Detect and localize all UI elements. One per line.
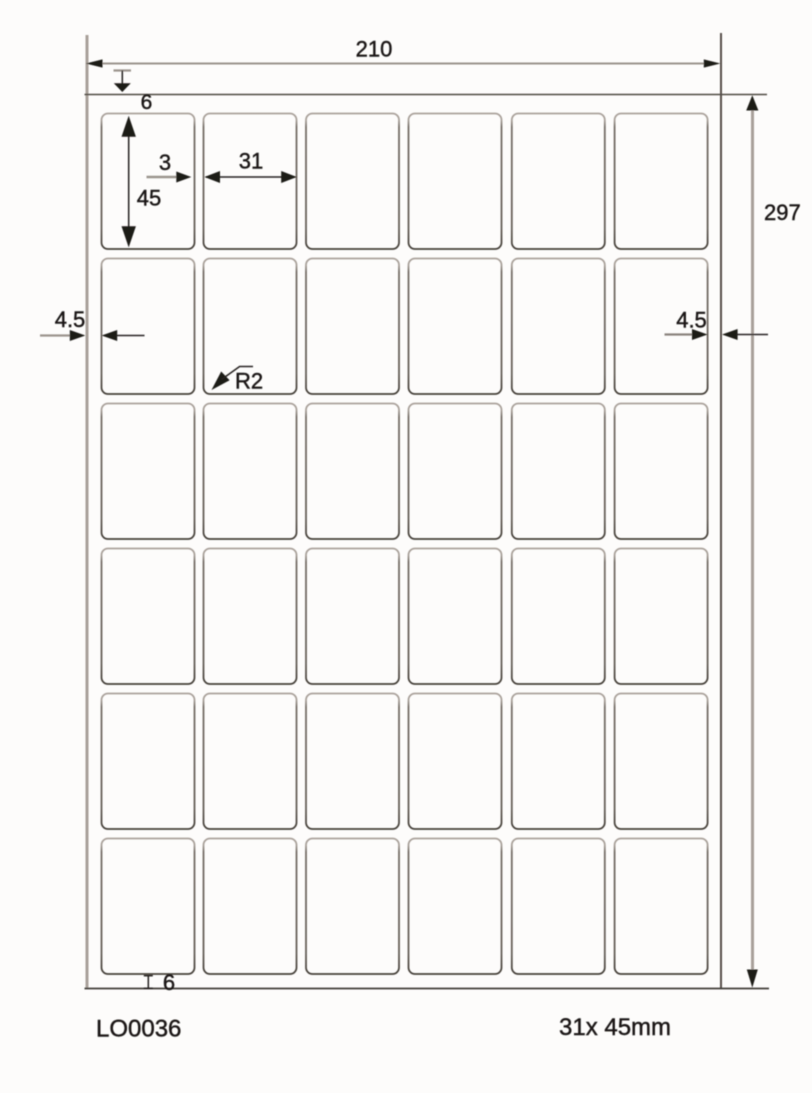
svg-text:6: 6: [163, 970, 175, 995]
svg-text:3: 3: [159, 150, 171, 175]
svg-text:210: 210: [356, 37, 393, 62]
svg-text:31: 31: [239, 149, 263, 174]
svg-text:6: 6: [141, 91, 153, 114]
svg-text:R2: R2: [235, 369, 263, 394]
svg-text:45: 45: [137, 186, 161, 211]
svg-text:297: 297: [764, 200, 801, 225]
svg-text:4.5: 4.5: [676, 308, 707, 333]
svg-text:31x 45mm: 31x 45mm: [559, 1014, 671, 1041]
svg-text:4.5: 4.5: [55, 307, 86, 332]
svg-text:LO0036: LO0036: [96, 1016, 181, 1043]
